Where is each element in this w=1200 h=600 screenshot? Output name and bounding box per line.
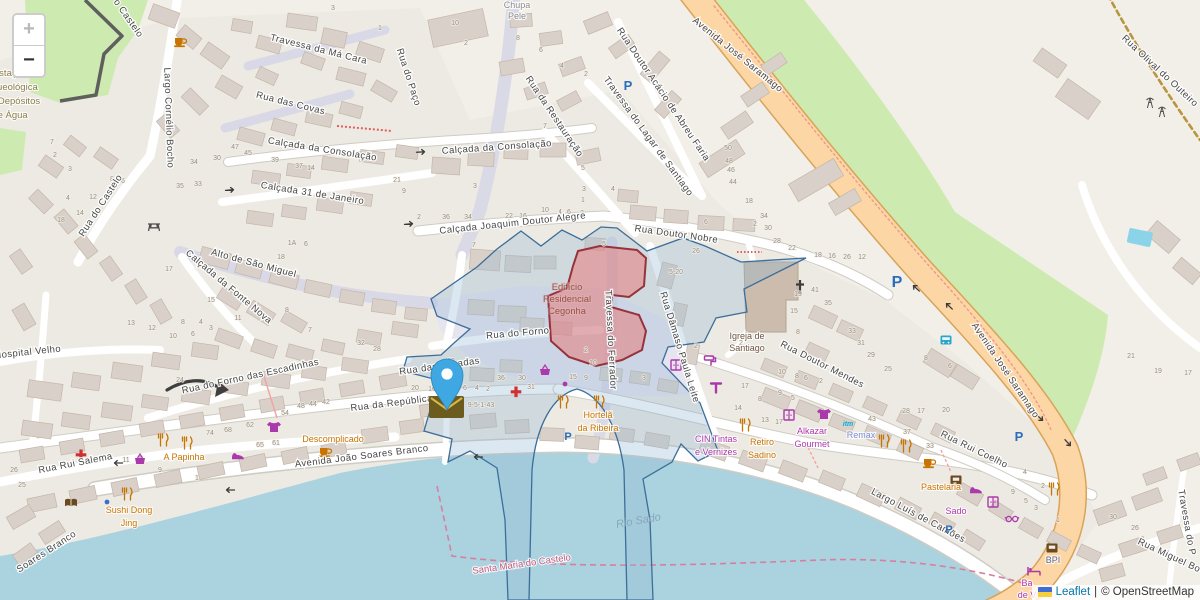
house-number: 45 <box>244 150 252 157</box>
house-number: 26 <box>843 254 851 261</box>
ukraine-flag-icon <box>1038 587 1052 597</box>
house-number: 18 <box>814 252 822 259</box>
house-number: 9 <box>402 188 406 195</box>
house-number: 14 <box>76 210 84 217</box>
house-number: 32 <box>357 340 365 347</box>
cup-icon <box>174 38 187 47</box>
house-number: 8 <box>796 329 800 336</box>
house-number: 30 <box>518 375 526 382</box>
house-number: 10 <box>589 360 597 367</box>
building <box>404 307 427 321</box>
building <box>539 31 563 47</box>
place-label: P <box>1015 429 1024 444</box>
house-number: 17 <box>741 383 749 390</box>
house-number: 7 <box>50 139 54 146</box>
house-number: 25 <box>18 482 26 489</box>
house-number: 2 <box>819 378 823 385</box>
house-number: 33 <box>926 443 934 450</box>
house-number: 21 <box>1127 353 1135 360</box>
house-number: 14 <box>307 165 315 172</box>
house-number: 61 <box>272 440 280 447</box>
house-number: 30 <box>764 225 772 232</box>
house-number: 18 <box>277 254 285 261</box>
house-number: 4 <box>199 319 203 326</box>
building <box>629 205 656 221</box>
leaflet-link[interactable]: Leaflet <box>1056 586 1091 598</box>
house-number: 28 <box>373 346 381 353</box>
place-label: P <box>564 431 571 443</box>
house-number: 1A <box>288 240 297 247</box>
house-number: 44 <box>309 401 317 408</box>
house-number: 21 <box>393 177 401 184</box>
house-number: 41 <box>811 287 819 294</box>
house-number: 16 <box>828 253 836 260</box>
house-number: 1 <box>378 25 382 32</box>
house-number: 18 <box>57 217 65 224</box>
house-number: 43 <box>868 416 876 423</box>
building <box>395 145 418 160</box>
house-number: 65 <box>256 442 264 449</box>
house-number: 11 <box>122 457 129 464</box>
house-number: 3 <box>331 5 335 12</box>
house-number: 26 <box>1131 525 1139 532</box>
house-number: 26 <box>10 467 18 474</box>
house-number: 12 <box>858 254 866 261</box>
house-number: 28 <box>773 238 781 245</box>
place-label: itm <box>843 421 854 428</box>
house-number: 3 <box>1034 505 1038 512</box>
house-number: 6 <box>539 47 543 54</box>
place-label: P <box>892 274 903 291</box>
house-number: 19 <box>794 291 802 298</box>
zoom-control: + − <box>12 13 46 78</box>
house-number: 48 <box>297 403 305 410</box>
house-number: 34 <box>464 214 472 221</box>
house-number: 10 <box>451 20 459 27</box>
house-number: 7 <box>472 242 476 249</box>
house-number: 25 <box>884 366 892 373</box>
house-number: 3 <box>582 186 586 193</box>
house-number: 3 <box>642 375 646 382</box>
place-label: Sado <box>945 506 966 516</box>
place-label: BPI <box>1046 555 1061 565</box>
building <box>617 189 638 203</box>
house-number: 15 <box>207 297 215 304</box>
house-number: 36 <box>442 214 450 221</box>
house-number: 1 <box>1056 517 1060 524</box>
house-number: 14 <box>734 405 742 412</box>
house-number: 6 <box>191 331 195 338</box>
house-number: 33 <box>194 181 202 188</box>
house-number: 17 <box>775 419 783 426</box>
house-number: 2 <box>53 152 57 159</box>
house-number: 15 <box>569 374 577 381</box>
house-number: 5 <box>1024 498 1028 505</box>
house-number: 1 <box>195 475 199 482</box>
place-label: Pastelaria <box>921 482 961 492</box>
house-number: 36 <box>497 375 505 382</box>
house-number: 12 <box>148 325 156 332</box>
house-number: 5 <box>791 395 795 402</box>
house-number: 5 <box>581 165 585 172</box>
house-number: 10 <box>541 207 549 214</box>
house-number: 2 <box>1041 483 1045 490</box>
house-number: 47 <box>231 144 239 151</box>
house-number: 4 <box>66 195 70 202</box>
place-label: Descomplicado <box>302 434 364 444</box>
dot-icon <box>563 382 568 387</box>
house-number: 8 <box>285 307 289 314</box>
house-number: 6 <box>704 219 708 226</box>
building <box>540 428 564 442</box>
house-number: 2 <box>584 347 588 354</box>
house-number: 17 <box>917 408 925 415</box>
house-number: 10 <box>778 369 786 376</box>
atm-icon <box>1047 544 1058 553</box>
cup-icon <box>923 459 936 468</box>
house-number: 37 <box>295 163 303 170</box>
house-number: 28 <box>902 408 910 415</box>
house-number: 3 <box>209 325 213 332</box>
house-number: 7 <box>543 123 547 130</box>
house-number: 8 <box>516 35 520 42</box>
place-label: A Papinha <box>163 452 204 462</box>
house-number: 13 <box>127 320 135 327</box>
house-number: 13 <box>761 417 769 424</box>
house-number: 4 <box>475 385 479 392</box>
house-number: 10 <box>169 333 177 340</box>
bus-icon <box>941 336 952 345</box>
house-number: 44 <box>729 179 737 186</box>
house-number: 8 <box>795 373 799 380</box>
building <box>664 209 689 224</box>
house-number: 6 <box>804 375 808 382</box>
house-number: 5-20 <box>669 269 683 276</box>
house-number: 29 <box>867 352 875 359</box>
house-number: 8 <box>924 355 928 362</box>
house-number: 31 <box>527 384 535 391</box>
house-number: 2 <box>464 40 468 47</box>
zoom-out-button[interactable]: − <box>14 46 44 76</box>
house-number: 39 <box>271 157 279 164</box>
house-number: 34 <box>190 159 198 166</box>
house-number: 7 <box>308 327 312 334</box>
house-number: 17 <box>1184 370 1192 377</box>
house-number: 74 <box>206 430 214 437</box>
house-number: 12 <box>89 194 97 201</box>
house-number: 30 <box>1109 514 1117 521</box>
building <box>733 218 756 231</box>
house-number: 24 <box>176 377 184 384</box>
house-number: 17 <box>165 266 173 273</box>
house-number: 20 <box>411 385 419 392</box>
place-label: P <box>945 524 952 536</box>
map-application: 3121086427219353423634221610462175265-20… <box>0 0 1200 600</box>
house-number: 4 <box>560 63 564 70</box>
place-label: Remax <box>847 430 876 440</box>
house-number: 35 <box>176 183 184 190</box>
house-number: 9 <box>158 467 162 474</box>
house-number: 68 <box>224 427 232 434</box>
house-number: 33 <box>848 328 856 335</box>
house-number: 48 <box>725 158 733 165</box>
building <box>574 435 599 450</box>
building <box>431 157 460 175</box>
house-number: 50 <box>724 145 732 152</box>
house-number: 30 <box>213 155 221 162</box>
house-number: 62 <box>246 422 254 429</box>
house-number: 11 <box>234 315 241 322</box>
house-number: 35 <box>824 300 832 307</box>
house-number: 18 <box>745 198 753 205</box>
attribution-separator: | <box>1094 586 1097 598</box>
house-number: 6 <box>948 363 952 370</box>
house-number: 46 <box>727 167 735 174</box>
house-number: 2 <box>753 221 757 228</box>
house-number: 3 <box>473 183 477 190</box>
house-number: 3 <box>68 166 72 173</box>
house-number: 20 <box>942 407 950 414</box>
house-number: 19 <box>1154 368 1162 375</box>
house-number: 2 <box>584 71 588 78</box>
house-number: 31 <box>857 340 865 347</box>
house-number: 2 <box>417 214 421 221</box>
house-number: 8 <box>758 396 762 403</box>
house-number: 9 <box>778 390 782 397</box>
house-number: 9-5-1-43 <box>468 402 495 409</box>
attribution-bar: Leaflet | © OpenStreetMap <box>1032 585 1200 600</box>
house-number: 9 <box>584 375 588 382</box>
house-number: 4 <box>1023 469 1027 476</box>
house-number: 1 <box>581 197 585 204</box>
house-number: 26 <box>692 248 700 255</box>
house-number: 2 <box>486 386 490 393</box>
zoom-in-button[interactable]: + <box>14 15 44 46</box>
place-label: P <box>624 78 633 93</box>
dot-icon <box>105 500 110 505</box>
book-icon <box>65 499 77 506</box>
osm-attribution: © OpenStreetMap <box>1101 586 1194 598</box>
house-number: 4 <box>611 186 615 193</box>
map-canvas[interactable]: 3121086427219353423634221610462175265-20… <box>0 0 1200 600</box>
house-number: 5 <box>602 241 606 248</box>
house-number: 8 <box>181 319 185 326</box>
house-number: 42 <box>322 399 330 406</box>
house-number: 9 <box>1011 489 1015 496</box>
house-number: 34 <box>760 213 768 220</box>
house-number: 54 <box>281 410 289 417</box>
house-number: 37 <box>903 429 911 436</box>
house-number: 2 <box>694 343 698 350</box>
building <box>698 215 725 230</box>
house-number: 15 <box>790 308 798 315</box>
house-number: 22 <box>788 245 796 252</box>
house-number: 6 <box>463 385 467 392</box>
house-number: 6 <box>304 241 308 248</box>
